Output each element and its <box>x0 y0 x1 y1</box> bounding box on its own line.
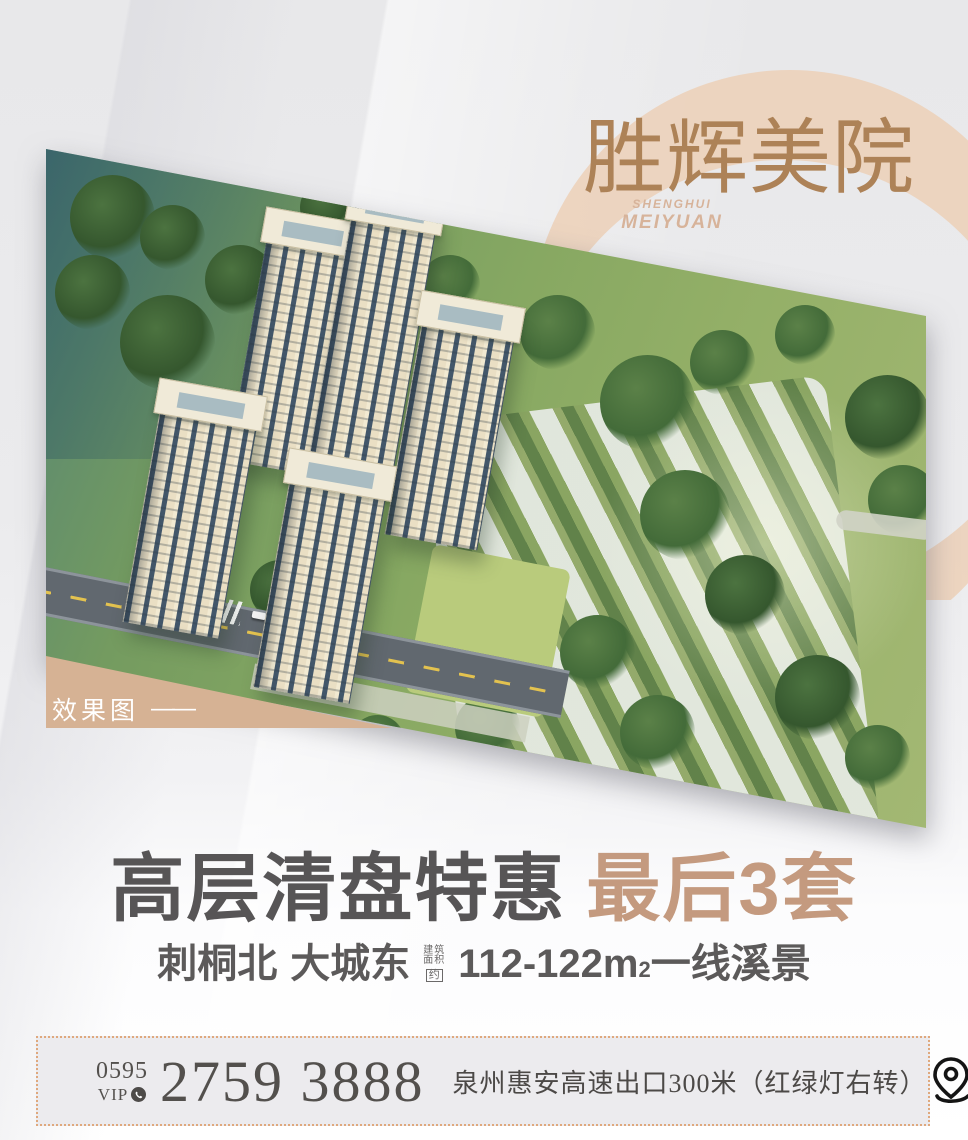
vip-row: VIP <box>98 1086 146 1103</box>
area-code: 0595 <box>96 1059 148 1083</box>
phone-icon-glyph <box>134 1090 144 1100</box>
tree-cluster <box>690 330 755 395</box>
render-label-dash: —— <box>151 695 193 723</box>
tree-cluster <box>55 255 130 330</box>
tree-cluster <box>520 295 595 370</box>
brand-pinyin-line1: SHENGHUI <box>597 198 747 212</box>
tree-cluster <box>845 725 910 790</box>
brand-name-pinyin: SHENGHUI MEIYUAN <box>597 198 747 234</box>
area-prefix-line2: 面积 <box>423 956 445 967</box>
location-pin-glyph <box>927 1055 968 1107</box>
tree-cluster <box>775 655 860 740</box>
tree-cluster <box>845 375 930 460</box>
location-pin-icon <box>927 1055 968 1107</box>
address-text: 泉州惠安高速出口300米（红绿灯右转） <box>453 1063 927 1100</box>
phone-icon <box>131 1087 146 1102</box>
render-label-text: 效果图 <box>52 691 139 727</box>
poster: 效果图 —— 胜辉美院 SHENGHUI MEIYUAN 高层清盘特惠 最后3套… <box>0 0 968 1140</box>
brand-pinyin-line2: MEIYUAN <box>597 212 747 234</box>
contact-bar: 0595 VIP 2759 3888 泉州惠安高速出口300米（红绿灯右转） <box>36 1036 930 1126</box>
area-prefix-stack: 建筑 面积 约 <box>423 946 445 983</box>
render-label: 效果图 —— <box>52 691 193 727</box>
tree-cluster <box>620 695 695 770</box>
area-superscript: 2 <box>638 959 650 981</box>
headline-main: 高层清盘特惠 <box>110 848 566 929</box>
headline-highlight: 最后3套 <box>586 848 857 929</box>
phone-number: 2759 3888 <box>160 1048 425 1115</box>
tree-cluster <box>600 355 695 450</box>
area-value: 112-122m <box>458 942 638 986</box>
brand-logo: 胜辉美院 SHENGHUI MEIYUAN <box>583 118 928 248</box>
area-prefix-approx-box: 约 <box>426 969 443 983</box>
vip-label: VIP <box>98 1086 128 1103</box>
location-east: 大城东 <box>290 942 410 986</box>
brand-name-chinese: 胜辉美院 <box>583 118 928 200</box>
tree-cluster <box>120 295 215 390</box>
location-north: 刺桐北 <box>157 942 277 986</box>
view-suffix: 一线溪景 <box>651 942 811 986</box>
tree-cluster <box>140 205 205 270</box>
subheadline: 刺桐北 大城东 建筑 面积 约 112-122m2一线溪景 <box>0 942 968 986</box>
tree-cluster <box>560 615 635 690</box>
tree-cluster <box>640 470 730 560</box>
tree-cluster <box>775 305 835 365</box>
headline: 高层清盘特惠 最后3套 <box>0 848 968 929</box>
area-and-view: 112-122m2一线溪景 <box>458 942 810 986</box>
tree-cluster <box>705 555 785 635</box>
phone-prefix-stack: 0595 VIP <box>96 1059 148 1103</box>
